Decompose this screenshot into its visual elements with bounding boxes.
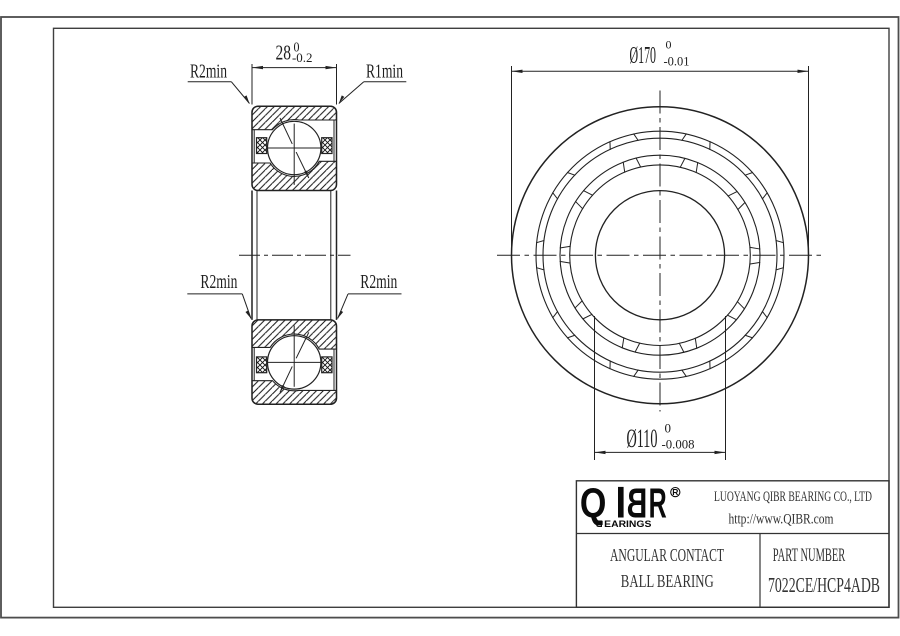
svg-text:R1min: R1min	[366, 60, 403, 82]
svg-text:BALL BEARING: BALL BEARING	[621, 571, 714, 591]
svg-text:http://www.QIBR.com: http://www.QIBR.com	[729, 512, 834, 528]
svg-text:-0.01: -0.01	[664, 55, 690, 69]
svg-text:R2min: R2min	[360, 271, 397, 293]
svg-text:0: 0	[666, 40, 672, 52]
svg-text:R2min: R2min	[190, 60, 227, 82]
svg-text:Ø110: Ø110	[627, 423, 658, 453]
svg-text:B: B	[596, 519, 603, 530]
svg-text:0: 0	[665, 422, 672, 436]
svg-text:Ø170: Ø170	[630, 42, 657, 69]
svg-text:LUOYANG QIBR BEARING CO., LTD: LUOYANG QIBR BEARING CO., LTD	[714, 489, 872, 505]
svg-text:R: R	[672, 487, 678, 497]
svg-text:EARINGS: EARINGS	[604, 519, 651, 530]
svg-text:PART NUMBER: PART NUMBER	[773, 545, 846, 566]
svg-text:-0.008: -0.008	[662, 437, 695, 451]
svg-text:-0.2: -0.2	[292, 51, 313, 65]
svg-text:ANGULAR CONTACT: ANGULAR CONTACT	[610, 545, 724, 565]
svg-text:28: 28	[276, 42, 292, 65]
svg-text:R2min: R2min	[200, 271, 237, 293]
svg-text:7022CE/HCP4ADB: 7022CE/HCP4ADB	[768, 573, 880, 597]
